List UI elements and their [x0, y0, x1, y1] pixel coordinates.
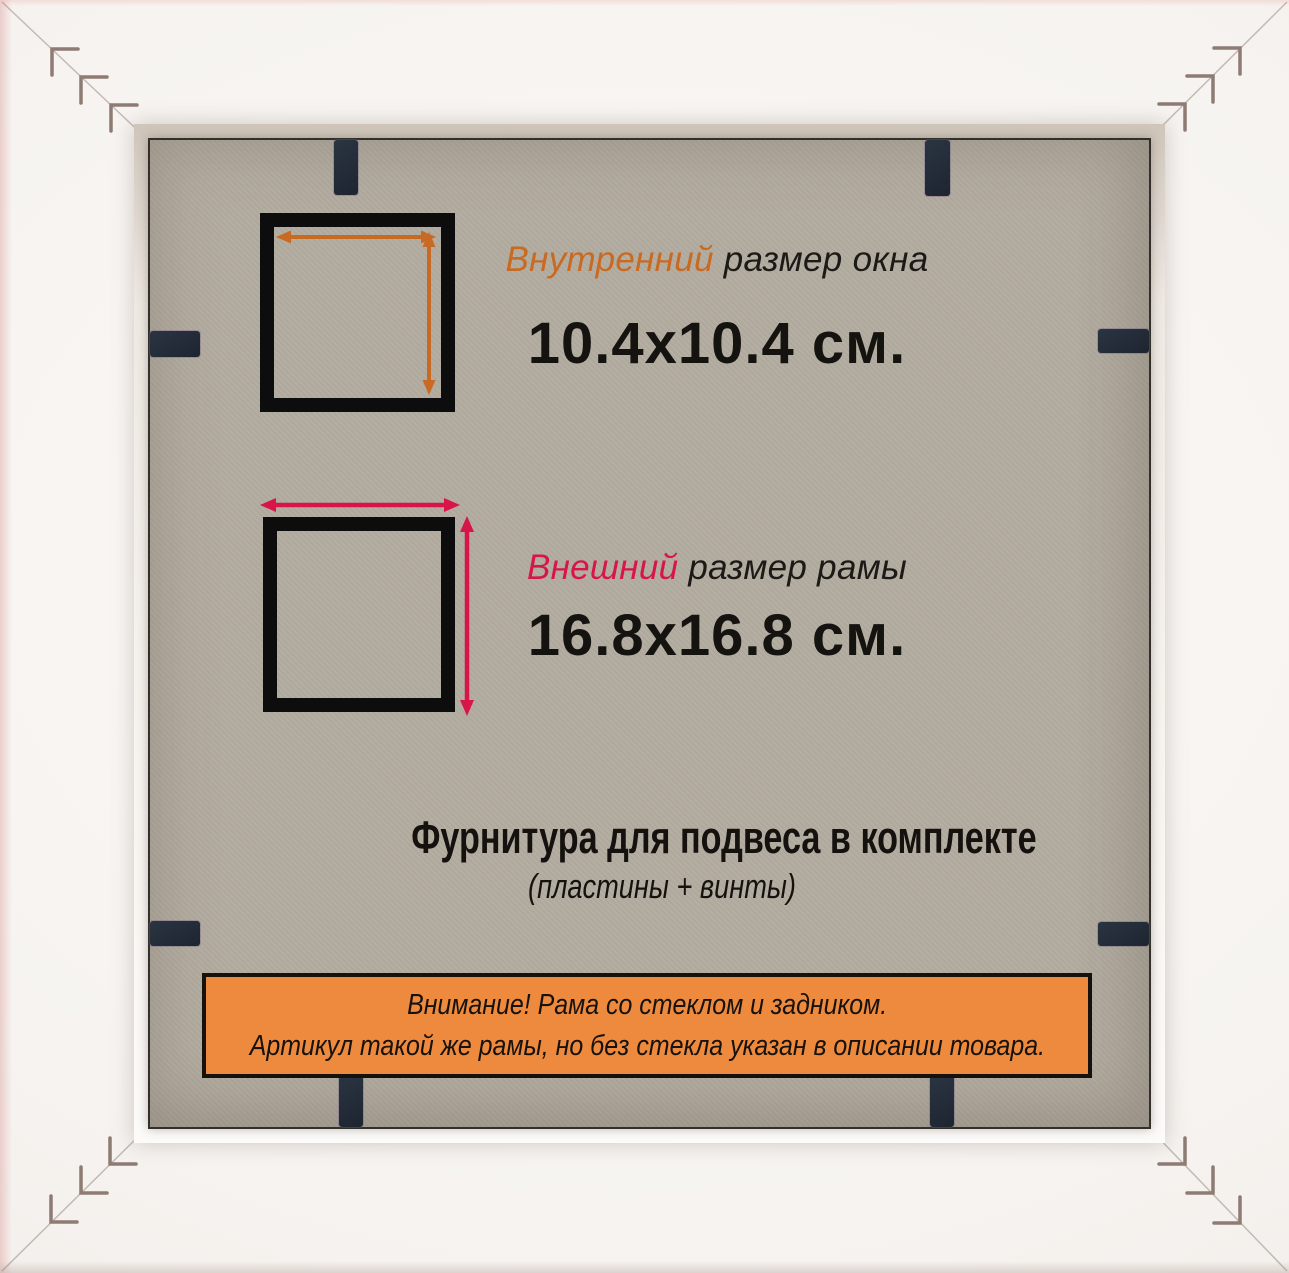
- notice-banner: Внимание! Рама со стеклом и задником. Ар…: [202, 973, 1092, 1078]
- flexi-clip-bottom-left: [339, 1076, 363, 1127]
- frame-bottom-edge-shade: [0, 1261, 1289, 1273]
- inner-size-square: [260, 213, 455, 412]
- flexi-clip-bottom-right: [930, 1076, 954, 1127]
- flexi-clip-top-left: [334, 140, 358, 195]
- flexi-clip-left-lower: [150, 921, 200, 946]
- flexi-clip-right-lower: [1098, 922, 1149, 946]
- outer-size-label: Внешний размер рамы: [427, 548, 1007, 588]
- miter-corner-bottom-left: [0, 1123, 160, 1273]
- outer-width-arrow-icon: [258, 497, 462, 513]
- inner-size-label-accent: Внутренний: [506, 240, 714, 279]
- frame-product-photo: Внутренний размер окна 10.4x10.4 см. Вне…: [0, 0, 1289, 1273]
- flexi-clip-left-upper: [150, 331, 200, 357]
- inner-size-label: Внутренний размер окна: [427, 240, 1007, 280]
- miter-corner-bottom-right: [1129, 1123, 1289, 1273]
- backing-board: Внутренний размер окна 10.4x10.4 см. Вне…: [148, 138, 1151, 1129]
- flexi-clip-top-right: [925, 140, 950, 196]
- notice-line2: Артикул такой же рамы, но без стекла ука…: [249, 1028, 1044, 1064]
- hardware-note-line2: (пластины + винты): [398, 868, 926, 907]
- inner-size-arrows-icon: [274, 227, 441, 398]
- frame-left-edge-tint: [0, 0, 12, 1273]
- outer-size-value: 16.8x16.8 см.: [427, 602, 1007, 669]
- outer-size-label-rest: размер рамы: [688, 548, 907, 587]
- notice-line1: Внимание! Рама со стеклом и задником.: [407, 987, 887, 1023]
- flexi-clip-right-upper: [1098, 329, 1149, 353]
- inner-size-label-rest: размер окна: [724, 240, 929, 279]
- hardware-note-line1: Фурнитура для подвеса в комплекте: [411, 812, 913, 864]
- inner-size-value: 10.4x10.4 см.: [427, 310, 1007, 377]
- outer-size-label-accent: Внешний: [527, 548, 678, 587]
- frame-top-edge-tint: [0, 0, 1289, 6]
